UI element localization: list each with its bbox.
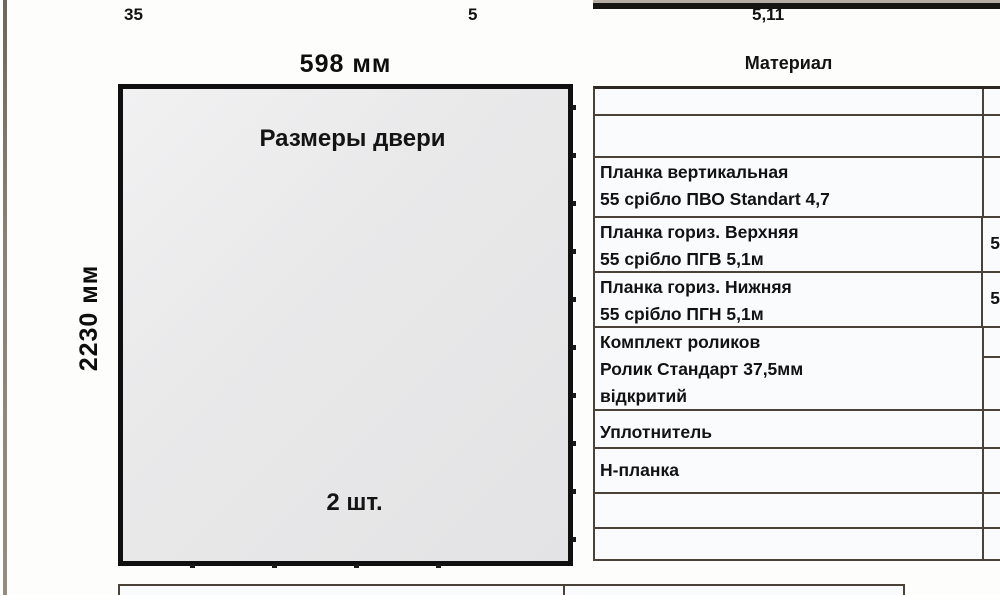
table-row: Уплотнитель <box>595 411 1000 449</box>
document-page: 598 мм 2230 мм Размеры двери 2 шт. Матер… <box>0 0 1000 595</box>
bottom-table-cell-text: 35 <box>124 5 143 25</box>
table-row <box>595 494 1000 529</box>
door-bottom-border-ticks <box>190 564 510 568</box>
table-row <box>595 529 1000 561</box>
table-row <box>595 89 1000 116</box>
material-value-cell <box>982 411 1000 447</box>
table-row: Планка гориз. Верхняя 55 срібло ПГВ 5,1м… <box>595 218 1000 273</box>
door-width-dimension: 598 мм <box>118 50 573 79</box>
material-value-cell <box>982 89 1000 114</box>
table-row <box>595 116 1000 158</box>
bottom-table-cell-text: 5 <box>468 5 477 25</box>
material-name-cell: Комплект роликов Ролик Стандарт 37,5мм в… <box>595 328 982 409</box>
table-row: Комплект роликов Ролик Стандарт 37,5мм в… <box>595 328 1000 411</box>
material-name-cell: Н-планка <box>595 449 982 492</box>
right-column-divider-line <box>982 356 1000 358</box>
door-diagram: Размеры двери 2 шт. <box>118 84 573 566</box>
door-diagram-title: Размеры двери <box>123 125 568 153</box>
door-height-dimension: 2230 мм <box>75 258 105 378</box>
material-name-cell: Уплотнитель <box>595 411 982 447</box>
material-name-cell <box>595 494 982 527</box>
material-value-cell <box>982 158 1000 216</box>
door-count-label: 2 шт. <box>123 489 568 517</box>
material-value-cell <box>982 116 1000 156</box>
material-value-cell <box>982 449 1000 492</box>
bottom-table-cell-text: 5,11 <box>752 5 784 25</box>
material-value-cell: 5 <box>981 273 1000 326</box>
table-row: Планка вертикальная 55 срібло ПВО Standa… <box>595 158 1000 218</box>
material-name-cell <box>595 529 982 559</box>
material-value-cell <box>982 328 1000 409</box>
material-value-cell: 5 <box>981 218 1000 271</box>
left-page-edge-line <box>3 0 7 595</box>
material-value-cell <box>982 529 1000 559</box>
material-value-cell <box>982 494 1000 527</box>
material-name-cell <box>595 89 982 114</box>
door-right-border-ticks <box>572 105 576 557</box>
materials-table: Планка вертикальная 55 срібло ПВО Standa… <box>593 86 1000 561</box>
table-row: Планка гориз. Нижняя 55 срібло ПГН 5,1м … <box>595 273 1000 328</box>
material-name-cell: Планка гориз. Верхняя 55 срібло ПГВ 5,1м <box>595 218 981 271</box>
material-name-cell: Планка вертикальная 55 срібло ПВО Standa… <box>595 158 982 216</box>
table-row: Н-планка <box>595 449 1000 494</box>
upper-table-bottom-border <box>593 0 1000 9</box>
materials-table-header: Материал <box>595 53 982 74</box>
material-name-cell <box>595 116 982 156</box>
bottom-table-divider <box>563 586 565 595</box>
material-name-cell: Планка гориз. Нижняя 55 срібло ПГН 5,1м <box>595 273 981 326</box>
bottom-cutoff-table <box>118 584 905 595</box>
